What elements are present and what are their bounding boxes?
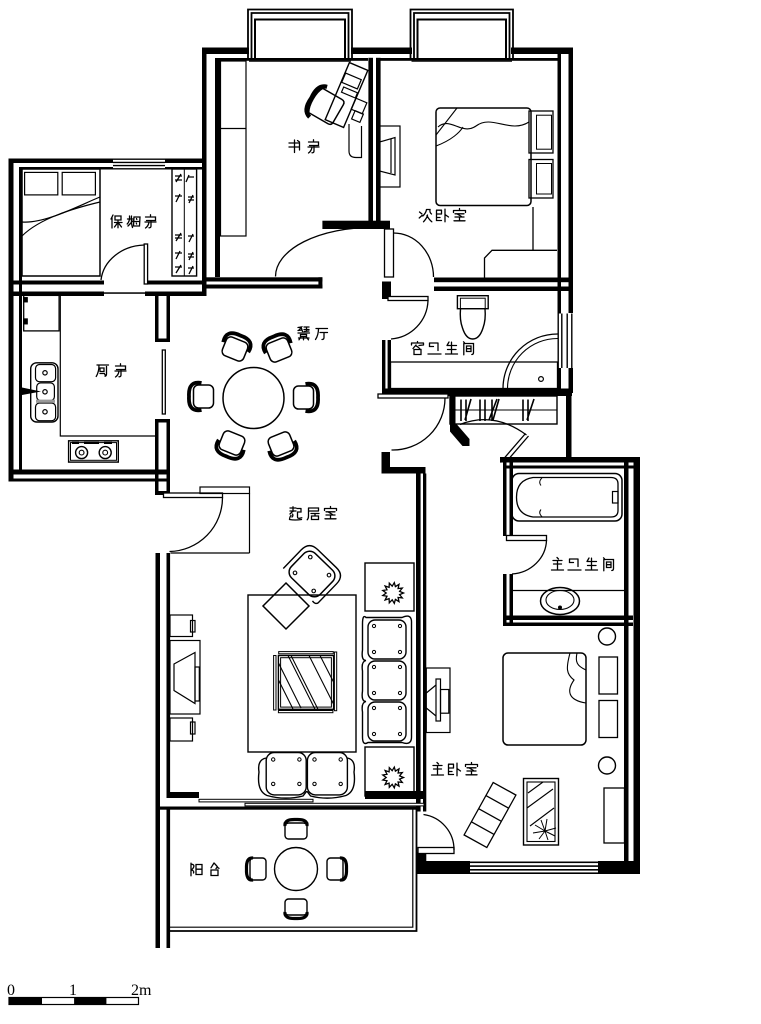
svg-text:0: 0 [7, 982, 15, 999]
svg-text:1: 1 [69, 982, 77, 999]
svg-text:2m: 2m [131, 982, 152, 999]
